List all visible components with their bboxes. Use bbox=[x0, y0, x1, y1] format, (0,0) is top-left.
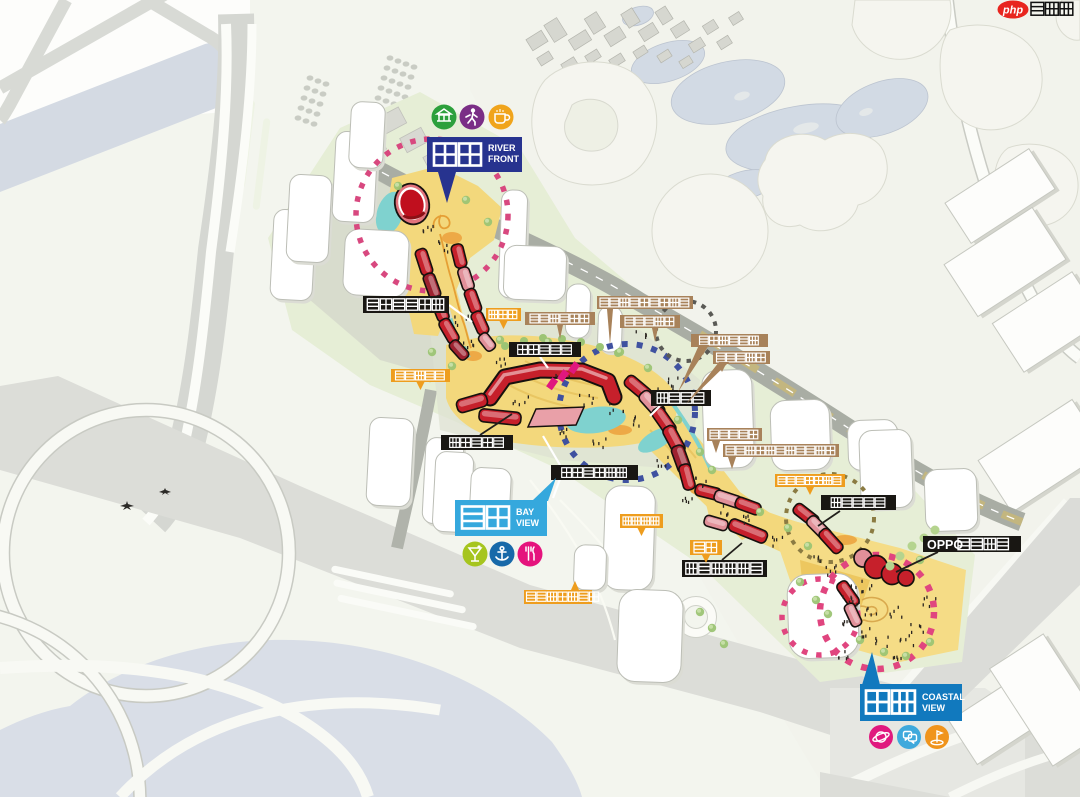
svg-text:php: php bbox=[1002, 5, 1023, 17]
svg-text:BAY: BAY bbox=[516, 507, 534, 517]
svg-text:RIVER: RIVER bbox=[488, 143, 516, 153]
svg-text:FRONT: FRONT bbox=[488, 154, 519, 164]
svg-text:VIEW: VIEW bbox=[922, 703, 946, 713]
svg-text:COASTAL: COASTAL bbox=[922, 692, 965, 702]
svg-text:VIEW: VIEW bbox=[516, 518, 540, 528]
